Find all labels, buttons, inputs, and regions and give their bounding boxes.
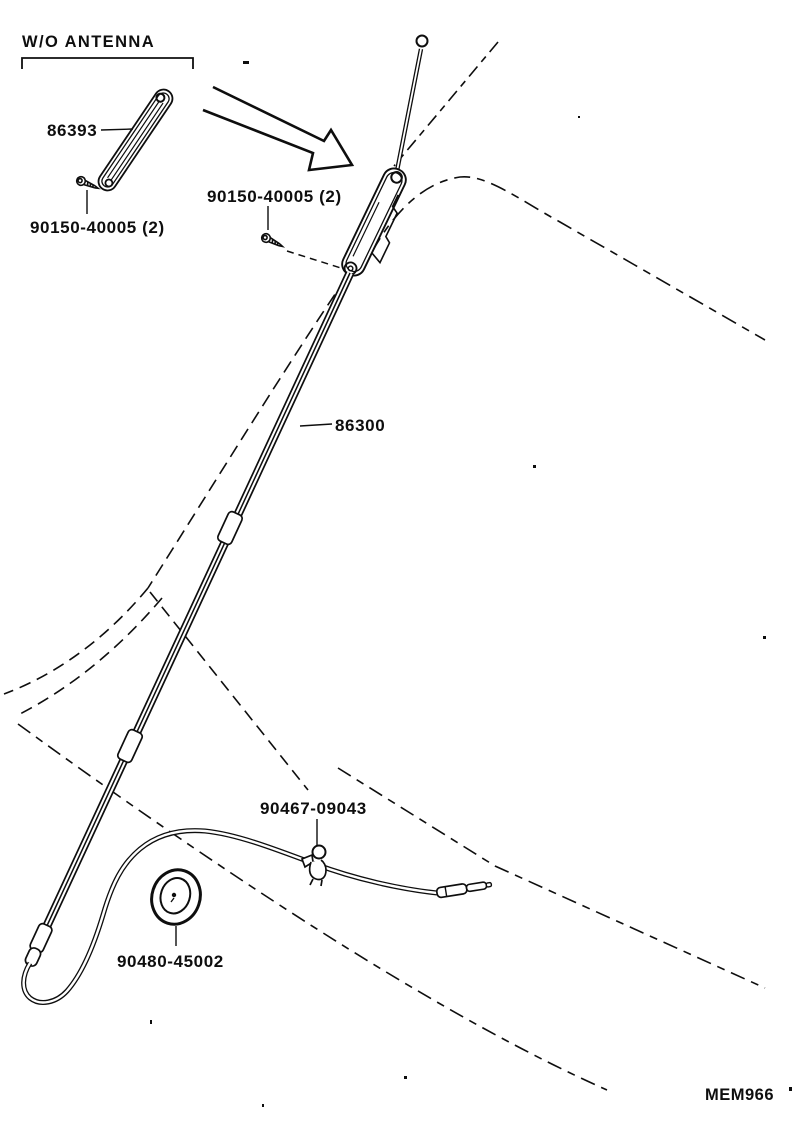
antenna-parts-diagram-page: W/O ANTENNA	[0, 0, 800, 1122]
grommet-outer-ring	[145, 863, 208, 930]
antenna-assembly	[338, 36, 427, 285]
screw-icon-right	[260, 232, 284, 250]
wo-antenna-section: W/O ANTENNA	[22, 33, 193, 69]
screw-icon-left	[75, 175, 99, 192]
part-label-grommet: 90480-45002	[117, 952, 224, 971]
grommet-center-dot	[172, 893, 176, 897]
cable-core	[24, 831, 437, 1003]
drawing-code: MEM966	[705, 1086, 774, 1104]
antenna-cable	[24, 831, 492, 1003]
antenna-garnish-86393	[95, 86, 176, 194]
clip-ring	[313, 846, 326, 859]
part-label-screw-right: 90150-40005 (2)	[207, 187, 342, 206]
mast-collar-1	[217, 510, 244, 545]
wo-antenna-bracket	[22, 58, 193, 69]
grommet-center-tail	[171, 898, 174, 902]
clip-body	[310, 860, 326, 880]
part-label-mast: 86300	[335, 416, 385, 435]
antenna-mast-86300	[24, 273, 350, 968]
cowl-hood-line	[372, 177, 765, 340]
door-window-line-2	[16, 598, 162, 716]
cable-connector-plug	[436, 879, 492, 897]
leader-line-garnish	[101, 129, 133, 130]
scan-speckles	[150, 61, 792, 1107]
antenna-rod-core	[396, 49, 421, 176]
cable-outline	[24, 831, 437, 1003]
part-label-clip: 90467-09043	[260, 799, 367, 818]
leader-line-mast	[300, 424, 332, 426]
screw-right-dashed-pointer	[287, 251, 344, 269]
rocker-line	[338, 768, 765, 988]
grommet-90480	[145, 863, 208, 930]
diagram-canvas: W/O ANTENNA	[0, 0, 800, 1122]
part-label-garnish: 86393	[47, 121, 97, 140]
antenna-base	[338, 165, 419, 284]
a-pillar-lower-line	[148, 278, 346, 588]
wo-antenna-note: W/O ANTENNA	[22, 33, 155, 51]
mast-collar-2	[117, 728, 144, 763]
pointer-arrow	[203, 87, 352, 170]
part-label-screw-left: 90150-40005 (2)	[30, 218, 165, 237]
antenna-tip-ball	[417, 36, 428, 47]
cable-clip-90467	[302, 846, 326, 887]
fender-crease-line	[150, 592, 308, 790]
